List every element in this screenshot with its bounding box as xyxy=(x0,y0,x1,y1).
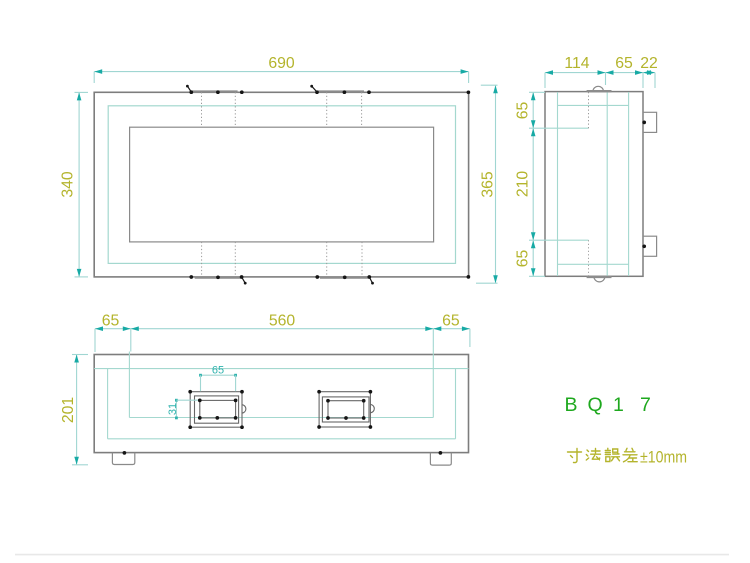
svg-text:114: 114 xyxy=(564,55,589,72)
svg-text:Q: Q xyxy=(588,394,603,416)
svg-text:B: B xyxy=(565,394,578,416)
svg-text:1: 1 xyxy=(613,394,624,416)
svg-text:65: 65 xyxy=(212,364,224,376)
svg-text:365: 365 xyxy=(480,171,497,198)
svg-text:31: 31 xyxy=(167,403,179,415)
svg-text:65: 65 xyxy=(615,55,633,72)
svg-text:7: 7 xyxy=(640,394,651,416)
svg-text:22: 22 xyxy=(640,55,658,72)
svg-text:690: 690 xyxy=(268,55,295,72)
svg-text:±10mm: ±10mm xyxy=(640,448,687,467)
svg-text:340: 340 xyxy=(60,171,77,198)
svg-text:210: 210 xyxy=(515,171,532,198)
svg-text:201: 201 xyxy=(60,397,77,424)
svg-text:65: 65 xyxy=(442,313,460,330)
svg-text:560: 560 xyxy=(269,313,296,330)
svg-text:65: 65 xyxy=(515,250,532,268)
svg-text:65: 65 xyxy=(102,313,120,330)
svg-text:65: 65 xyxy=(515,102,532,120)
